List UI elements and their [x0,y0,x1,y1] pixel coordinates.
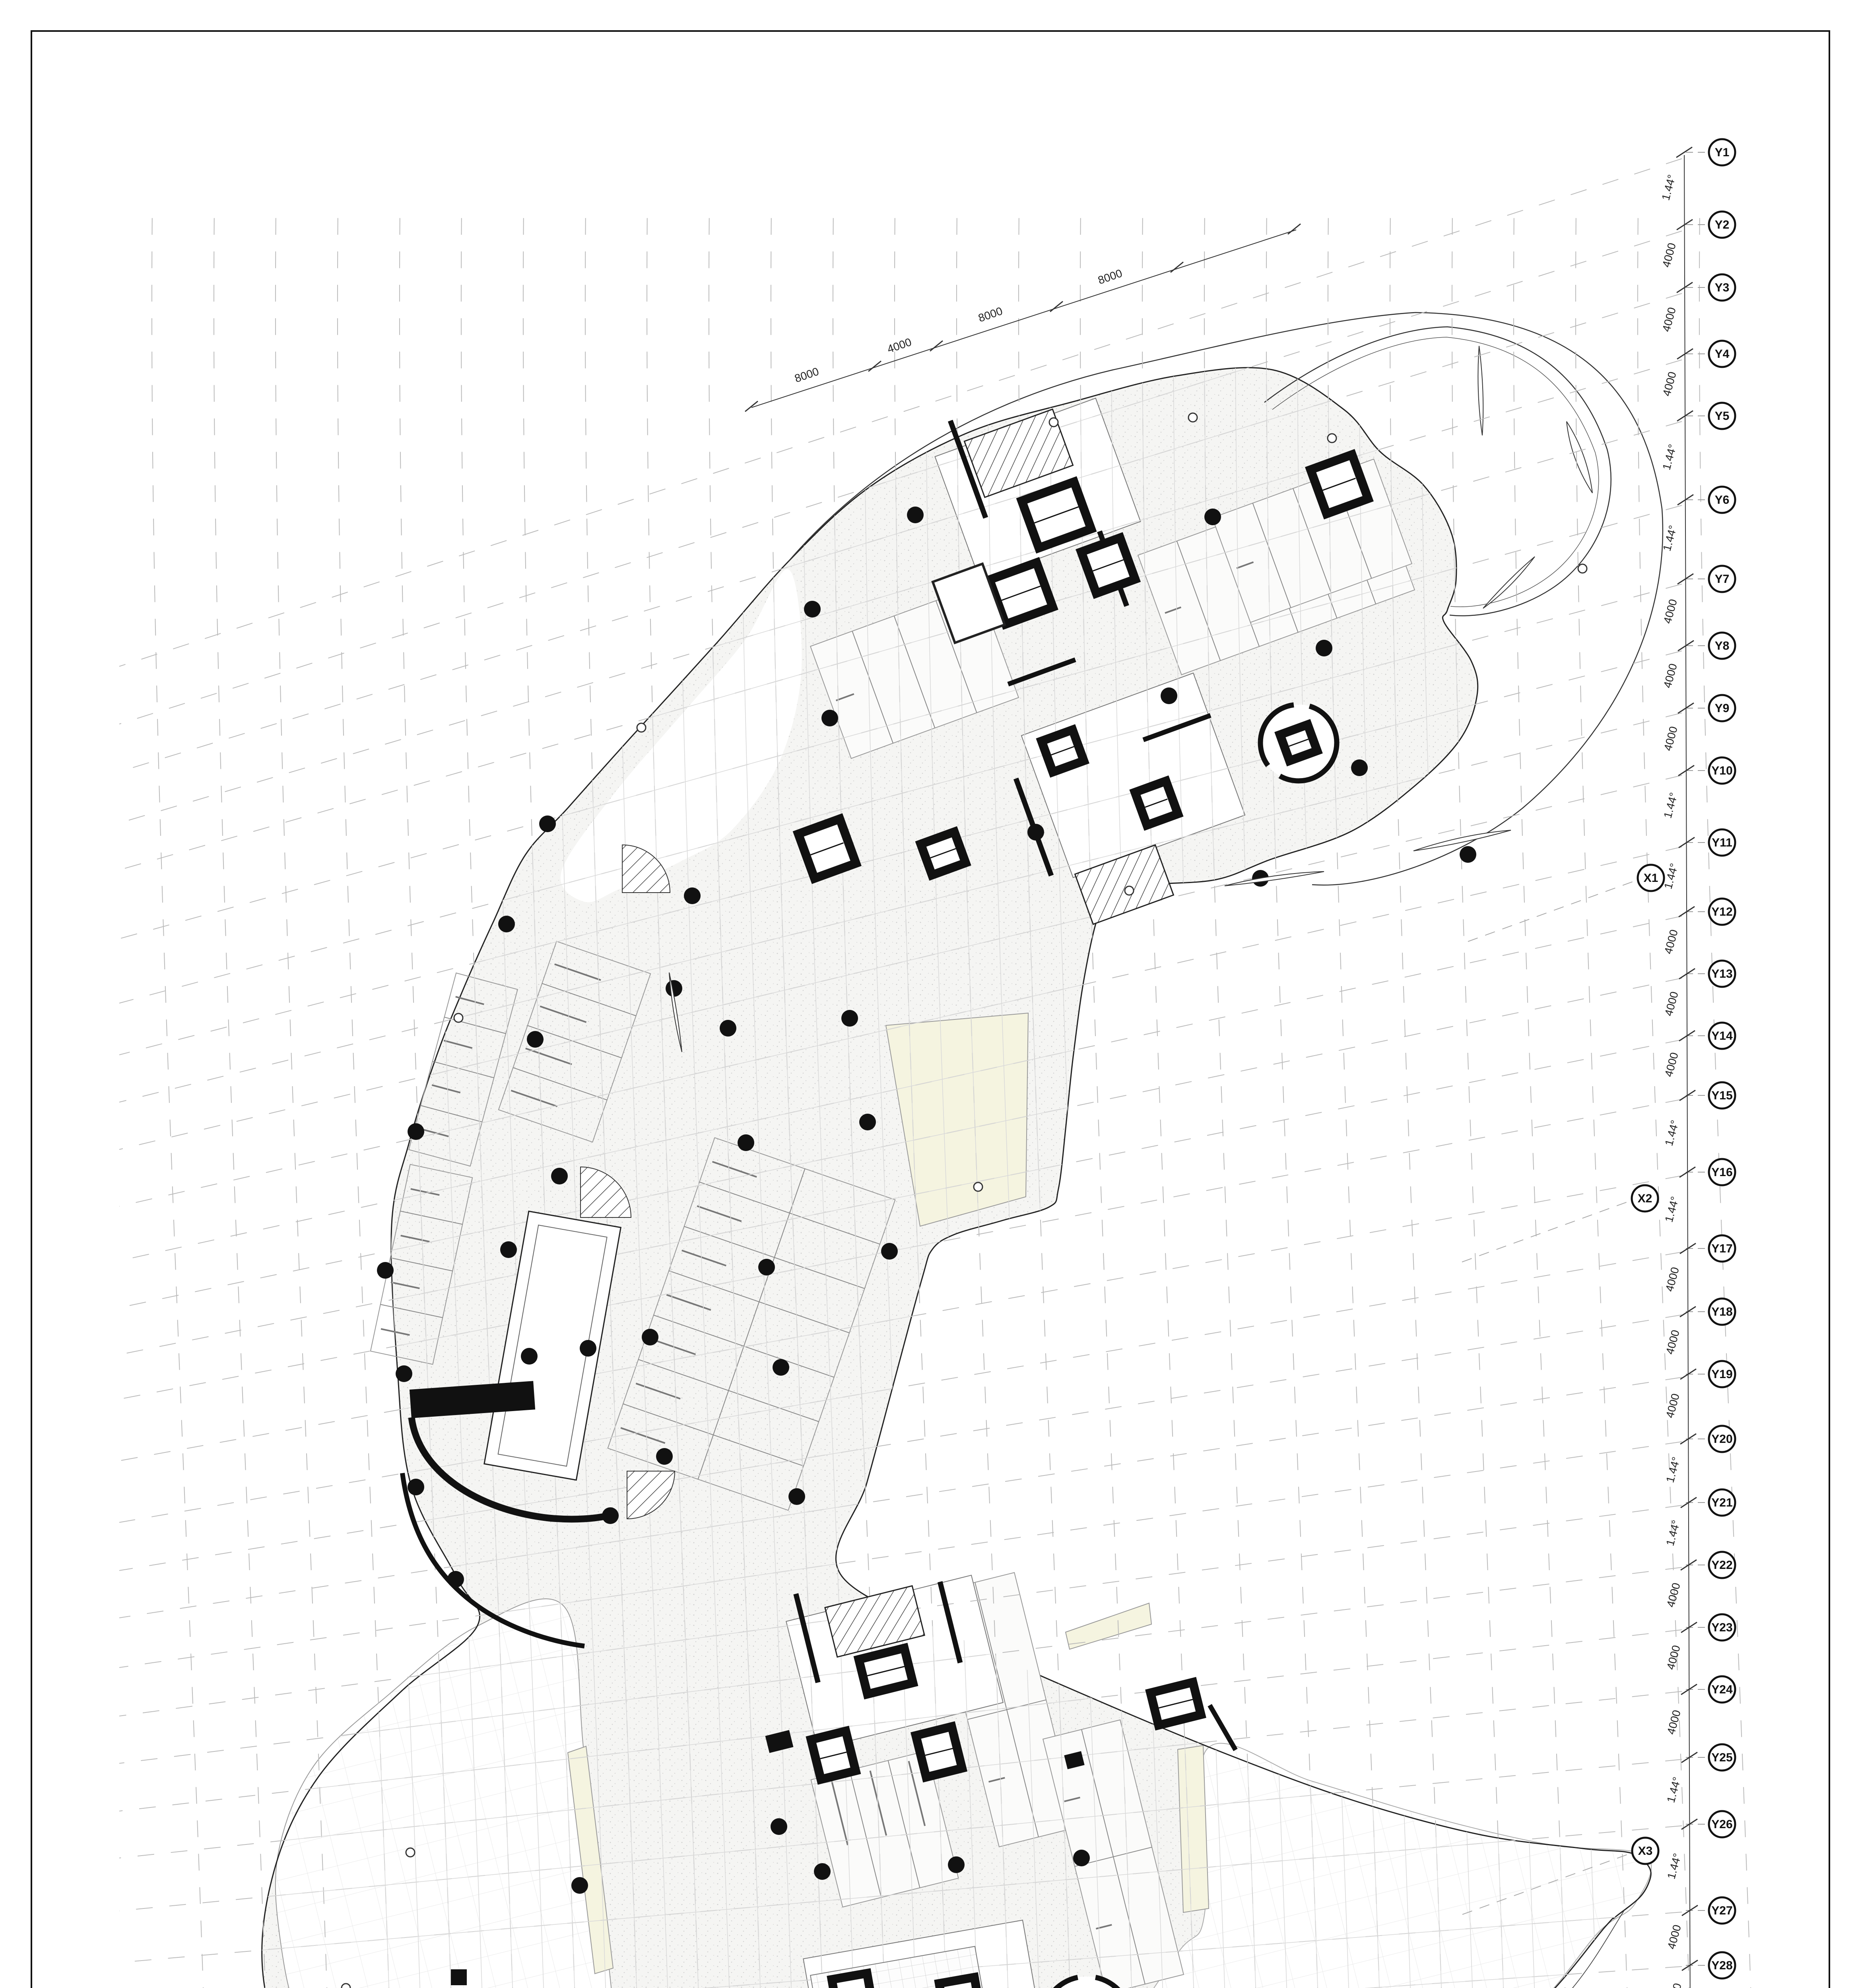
svg-text:Y3: Y3 [1715,281,1730,294]
svg-text:Y4: Y4 [1715,348,1730,361]
svg-text:Y9: Y9 [1715,702,1730,715]
svg-text:Y21: Y21 [1711,1496,1732,1509]
svg-text:Y6: Y6 [1715,493,1730,507]
svg-text:X1: X1 [1644,872,1658,885]
svg-text:Y14: Y14 [1711,1029,1733,1043]
svg-text:Y28: Y28 [1711,1959,1732,1972]
svg-text:Y11: Y11 [1712,836,1732,849]
svg-text:Y8: Y8 [1715,639,1730,652]
svg-text:Y18: Y18 [1711,1305,1732,1318]
svg-text:Y10: Y10 [1711,764,1732,777]
svg-text:Y5: Y5 [1715,410,1730,423]
svg-text:Y22: Y22 [1711,1559,1732,1572]
svg-text:Y20: Y20 [1711,1433,1732,1446]
svg-text:Y25: Y25 [1711,1751,1732,1764]
svg-text:Y16: Y16 [1711,1166,1732,1179]
svg-text:Y26: Y26 [1711,1818,1732,1831]
svg-text:Y15: Y15 [1711,1089,1732,1102]
svg-text:Y1: Y1 [1715,146,1730,159]
svg-text:X3: X3 [1638,1844,1653,1858]
svg-text:X2: X2 [1638,1192,1652,1205]
svg-text:Y24: Y24 [1711,1683,1733,1696]
svg-text:Y17: Y17 [1711,1242,1732,1255]
svg-text:Y19: Y19 [1711,1368,1732,1381]
svg-text:Y2: Y2 [1715,218,1730,231]
svg-text:Y23: Y23 [1711,1621,1732,1634]
svg-text:Y13: Y13 [1711,967,1732,980]
svg-text:Y27: Y27 [1711,1904,1732,1917]
svg-text:Y7: Y7 [1715,573,1730,586]
svg-text:Y12: Y12 [1711,905,1732,918]
